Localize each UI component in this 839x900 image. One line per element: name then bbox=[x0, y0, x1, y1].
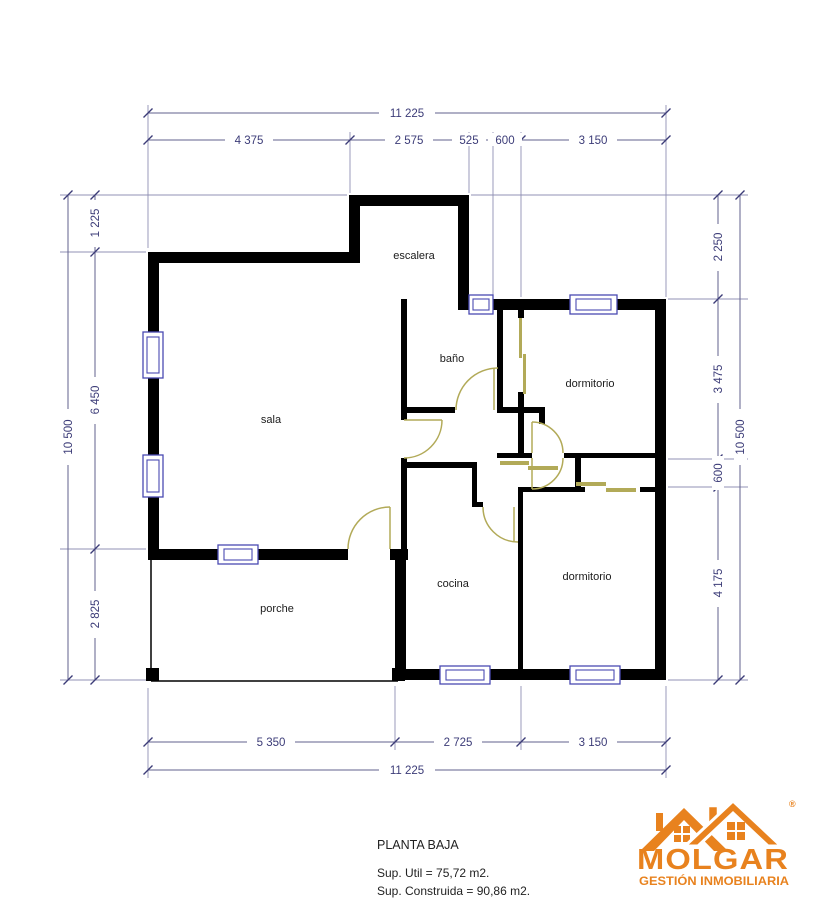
room-label-porche: porche bbox=[260, 603, 294, 615]
window-sala-lower bbox=[143, 455, 163, 497]
window-porche-sala bbox=[218, 545, 258, 564]
dim-right-total: 10 500 bbox=[735, 419, 747, 454]
molgar-logo: ® MOLGAR GESTIÓN INMOBILIARIA bbox=[637, 799, 796, 888]
door-dormitorio2 bbox=[532, 458, 563, 489]
dim-bottom-2: 2 725 bbox=[444, 737, 473, 749]
registered-mark: ® bbox=[789, 799, 796, 809]
dim-top-4: 600 bbox=[495, 135, 514, 147]
dim-top-3: 525 bbox=[459, 135, 478, 147]
dim-bottom-1: 5 350 bbox=[257, 737, 286, 749]
dim-left-total: 10 500 bbox=[63, 419, 75, 454]
logo-name: MOLGAR bbox=[637, 844, 789, 876]
doors bbox=[348, 318, 636, 549]
porch-outline bbox=[146, 560, 405, 681]
sup-util-text: Sup. Util = 75,72 m2. bbox=[377, 866, 489, 880]
dim-right-1: 2 250 bbox=[713, 233, 725, 262]
floor-plan-sheet: 11 225 4 375 2 575 525 600 3 150 10 500 … bbox=[0, 0, 839, 900]
door-bano bbox=[456, 368, 498, 410]
dim-right-2: 3 475 bbox=[713, 365, 725, 394]
window-cocina bbox=[440, 666, 490, 684]
footer: PLANTA BAJA Sup. Util = 75,72 m2. Sup. C… bbox=[377, 838, 530, 898]
floor-plan-drawing: 11 225 4 375 2 575 525 600 3 150 10 500 … bbox=[0, 0, 839, 900]
walls bbox=[148, 195, 666, 680]
dim-top-1: 4 375 bbox=[235, 135, 264, 147]
door-cocina bbox=[483, 507, 518, 542]
window-escalera bbox=[469, 295, 493, 314]
window-dormitorio1 bbox=[570, 295, 617, 314]
dim-left-1: 1 225 bbox=[90, 209, 102, 238]
room-label-sala: sala bbox=[261, 414, 282, 426]
logo-tagline: GESTIÓN INMOBILIARIA bbox=[639, 873, 789, 888]
dim-bottom-total: 11 225 bbox=[390, 765, 424, 777]
dim-left-2: 6 450 bbox=[90, 386, 102, 415]
room-label-dormitorio1: dormitorio bbox=[566, 378, 615, 390]
dim-bottom-3: 3 150 bbox=[579, 737, 608, 749]
room-label-bano: baño bbox=[440, 353, 464, 365]
room-label-cocina: cocina bbox=[437, 578, 470, 590]
dim-right-3: 600 bbox=[713, 463, 725, 482]
door-dormitorio1 bbox=[532, 422, 563, 453]
dim-top-total: 11 225 bbox=[390, 108, 424, 120]
dim-right-4: 4 175 bbox=[713, 569, 725, 598]
door-sala-porche bbox=[348, 507, 390, 549]
room-label-escalera: escalera bbox=[393, 250, 435, 262]
dim-top-5: 3 150 bbox=[579, 135, 608, 147]
sliding-door-dormitorio1 bbox=[519, 318, 526, 394]
sliding-door-hall bbox=[500, 461, 558, 470]
sup-construida-text: Sup. Construida = 90,86 m2. bbox=[377, 884, 530, 898]
window-dormitorio2 bbox=[570, 666, 620, 684]
dim-left-3: 2 825 bbox=[90, 600, 102, 629]
window-sala-upper bbox=[143, 332, 163, 378]
page-title: PLANTA BAJA bbox=[377, 838, 459, 852]
room-label-dormitorio2: dormitorio bbox=[563, 571, 612, 583]
dim-top-2: 2 575 bbox=[395, 135, 424, 147]
door-sala-hall bbox=[404, 420, 442, 458]
